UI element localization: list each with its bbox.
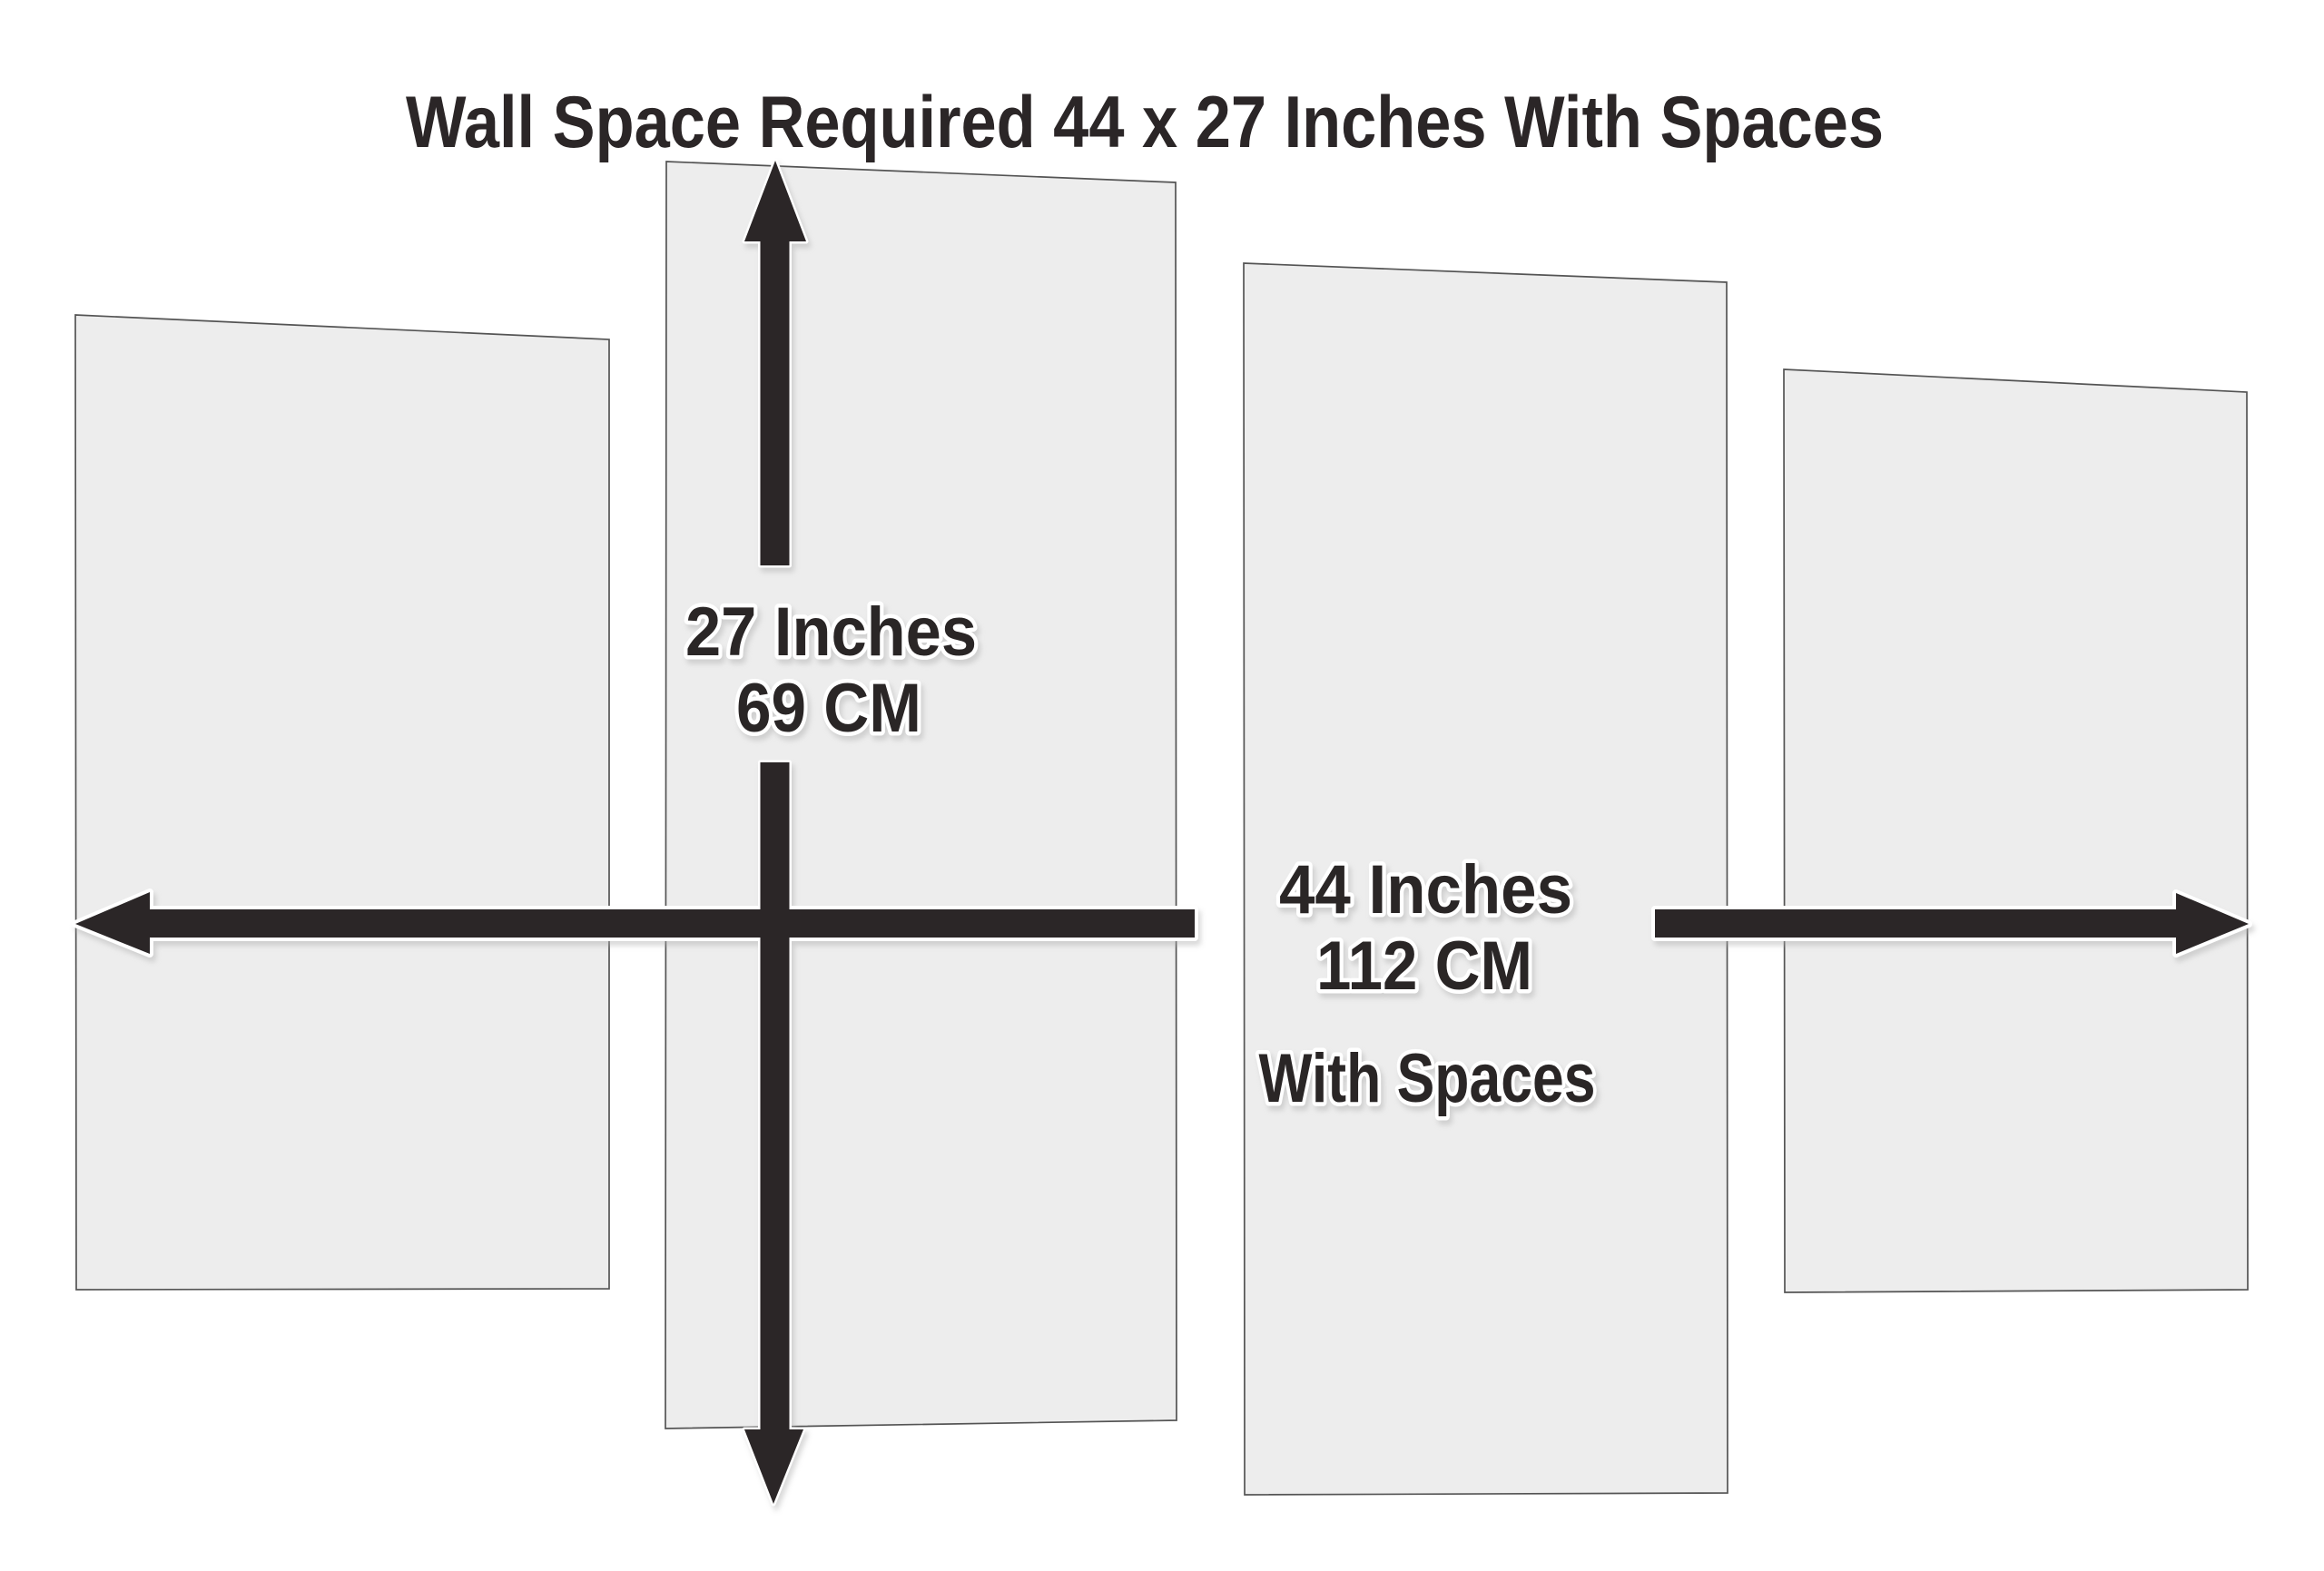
svg-text:27 Inches: 27 Inches [685,594,977,671]
svg-text:With Spaces: With Spaces [1259,1040,1596,1117]
svg-text:69 CM: 69 CM [736,670,921,747]
svg-text:Wall Space Required 44 x 27 In: Wall Space Required 44 x 27 Inches With … [406,82,1884,163]
svg-text:44 Inches: 44 Inches [1279,851,1572,928]
svg-text:112 CM: 112 CM [1316,928,1532,1005]
